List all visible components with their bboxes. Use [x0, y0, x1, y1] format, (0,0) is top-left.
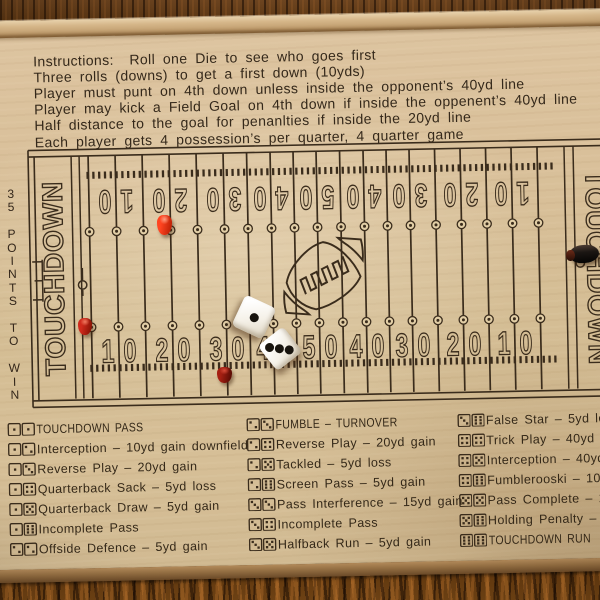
svg-text:4: 4	[349, 328, 363, 365]
svg-text:5: 5	[321, 178, 335, 215]
svg-text:0: 0	[417, 327, 431, 364]
svg-text:2: 2	[446, 326, 460, 363]
svg-text:3: 3	[209, 331, 223, 368]
svg-text:0: 0	[177, 332, 191, 369]
svg-text:4: 4	[368, 177, 382, 214]
svg-text:0: 0	[98, 182, 112, 219]
svg-text:0: 0	[371, 328, 385, 365]
svg-text:2: 2	[465, 175, 479, 212]
svg-text:5: 5	[302, 329, 316, 366]
svg-text:3: 3	[414, 176, 428, 213]
svg-text:0: 0	[253, 179, 267, 216]
svg-text:3: 3	[395, 327, 409, 364]
svg-text:0: 0	[324, 329, 338, 366]
svg-text:0: 0	[468, 326, 482, 363]
svg-text:2: 2	[174, 181, 188, 218]
svg-text:0: 0	[443, 175, 457, 212]
svg-text:0: 0	[519, 325, 533, 362]
svg-text:1: 1	[101, 333, 115, 370]
svg-text:0: 0	[152, 181, 166, 218]
svg-text:3: 3	[228, 180, 242, 217]
svg-text:1: 1	[120, 182, 134, 219]
svg-text:0: 0	[494, 174, 508, 211]
svg-text:2: 2	[155, 332, 169, 369]
svg-text:0: 0	[206, 180, 220, 217]
svg-text:0: 0	[346, 177, 360, 214]
svg-text:TOUCHDOWN: TOUCHDOWN	[579, 170, 600, 365]
svg-text:1: 1	[516, 174, 530, 211]
svg-text:0: 0	[231, 331, 245, 368]
svg-text:1: 1	[497, 325, 511, 362]
svg-text:0: 0	[392, 176, 406, 213]
svg-text:0: 0	[123, 333, 137, 370]
svg-text:4: 4	[275, 179, 289, 216]
svg-text:0: 0	[299, 178, 313, 215]
svg-text:TOUCHDOWN: TOUCHDOWN	[37, 181, 72, 376]
